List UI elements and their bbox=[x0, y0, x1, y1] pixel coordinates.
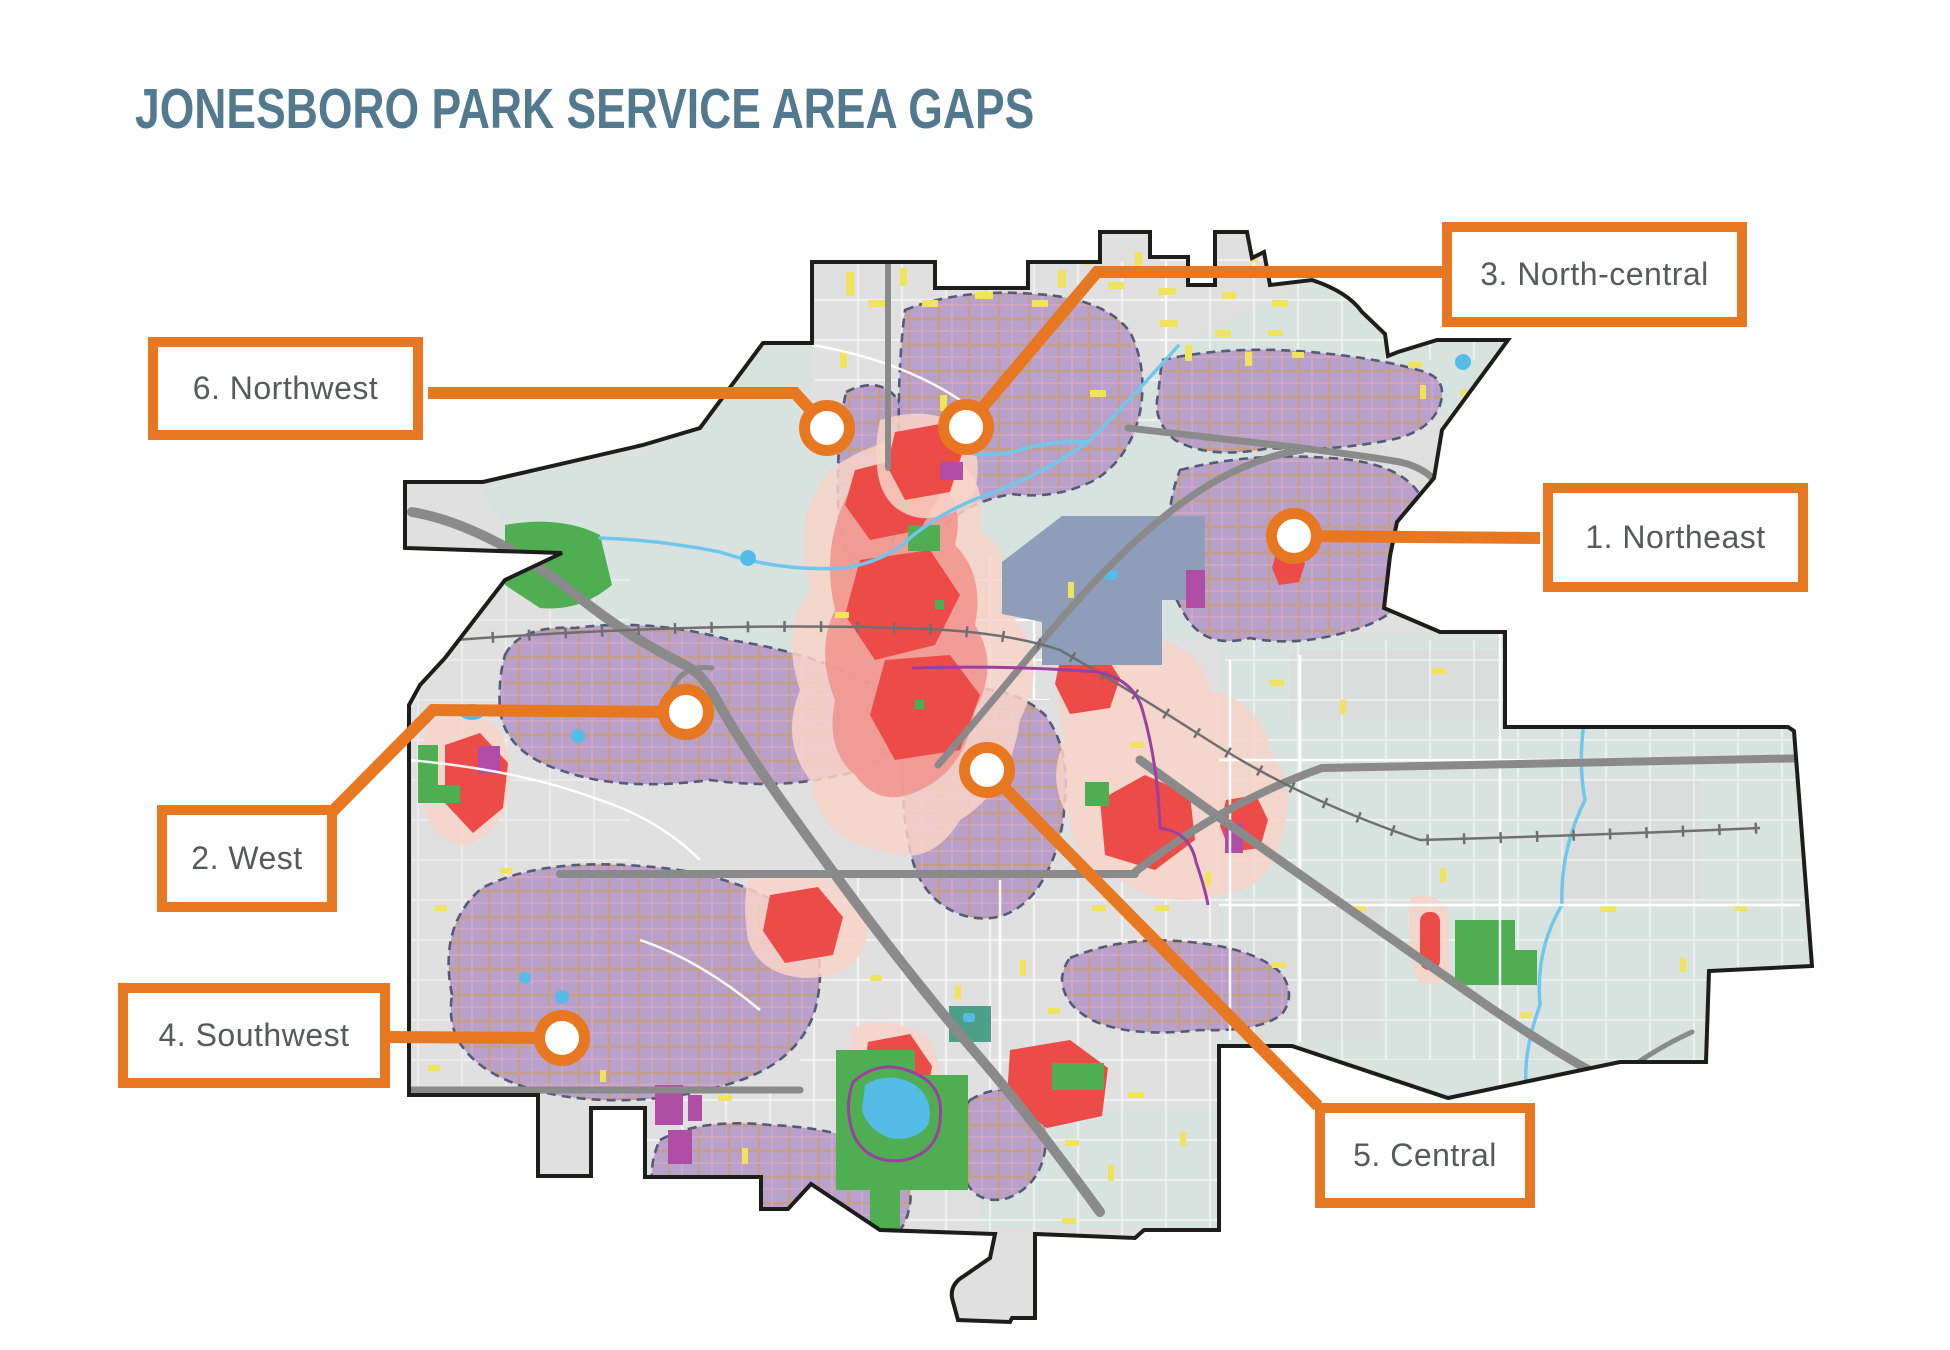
callout-central: 5. Central bbox=[1315, 1103, 1535, 1208]
marker-central bbox=[959, 742, 1015, 798]
callout-northwest-label: 6. Northwest bbox=[193, 370, 379, 407]
page-title: JONESBORO PARK SERVICE AREA GAPS bbox=[135, 76, 1034, 142]
callout-northwest: 6. Northwest bbox=[148, 337, 423, 440]
leader-northeast bbox=[1294, 536, 1540, 538]
marker-west bbox=[658, 684, 714, 740]
callout-southwest: 4. Southwest bbox=[118, 983, 390, 1088]
callout-northeast: 1. Northeast bbox=[1543, 483, 1808, 592]
callout-north-central-label: 3. North-central bbox=[1480, 256, 1709, 293]
callout-southwest-label: 4. Southwest bbox=[159, 1017, 350, 1054]
marker-northeast bbox=[1266, 508, 1322, 564]
marker-southwest bbox=[534, 1010, 590, 1066]
callout-west: 2. West bbox=[157, 805, 337, 912]
callout-central-label: 5. Central bbox=[1353, 1137, 1497, 1174]
marker-northwest bbox=[799, 400, 855, 456]
figure-root: 3. North-central 6. Northwest 1. Northea… bbox=[0, 0, 1950, 1350]
marker-north-central bbox=[938, 399, 994, 455]
callout-northeast-label: 1. Northeast bbox=[1585, 519, 1765, 556]
city-map bbox=[0, 0, 1950, 1350]
callout-west-label: 2. West bbox=[191, 840, 302, 877]
callout-north-central: 3. North-central bbox=[1442, 222, 1747, 327]
